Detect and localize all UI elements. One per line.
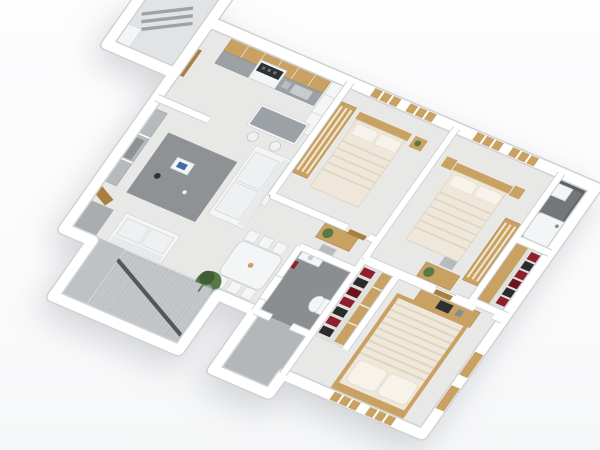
scene	[0, 0, 600, 450]
floorplan-render	[0, 0, 600, 450]
floorplan-svg	[0, 0, 600, 450]
render-canvas	[0, 0, 600, 450]
